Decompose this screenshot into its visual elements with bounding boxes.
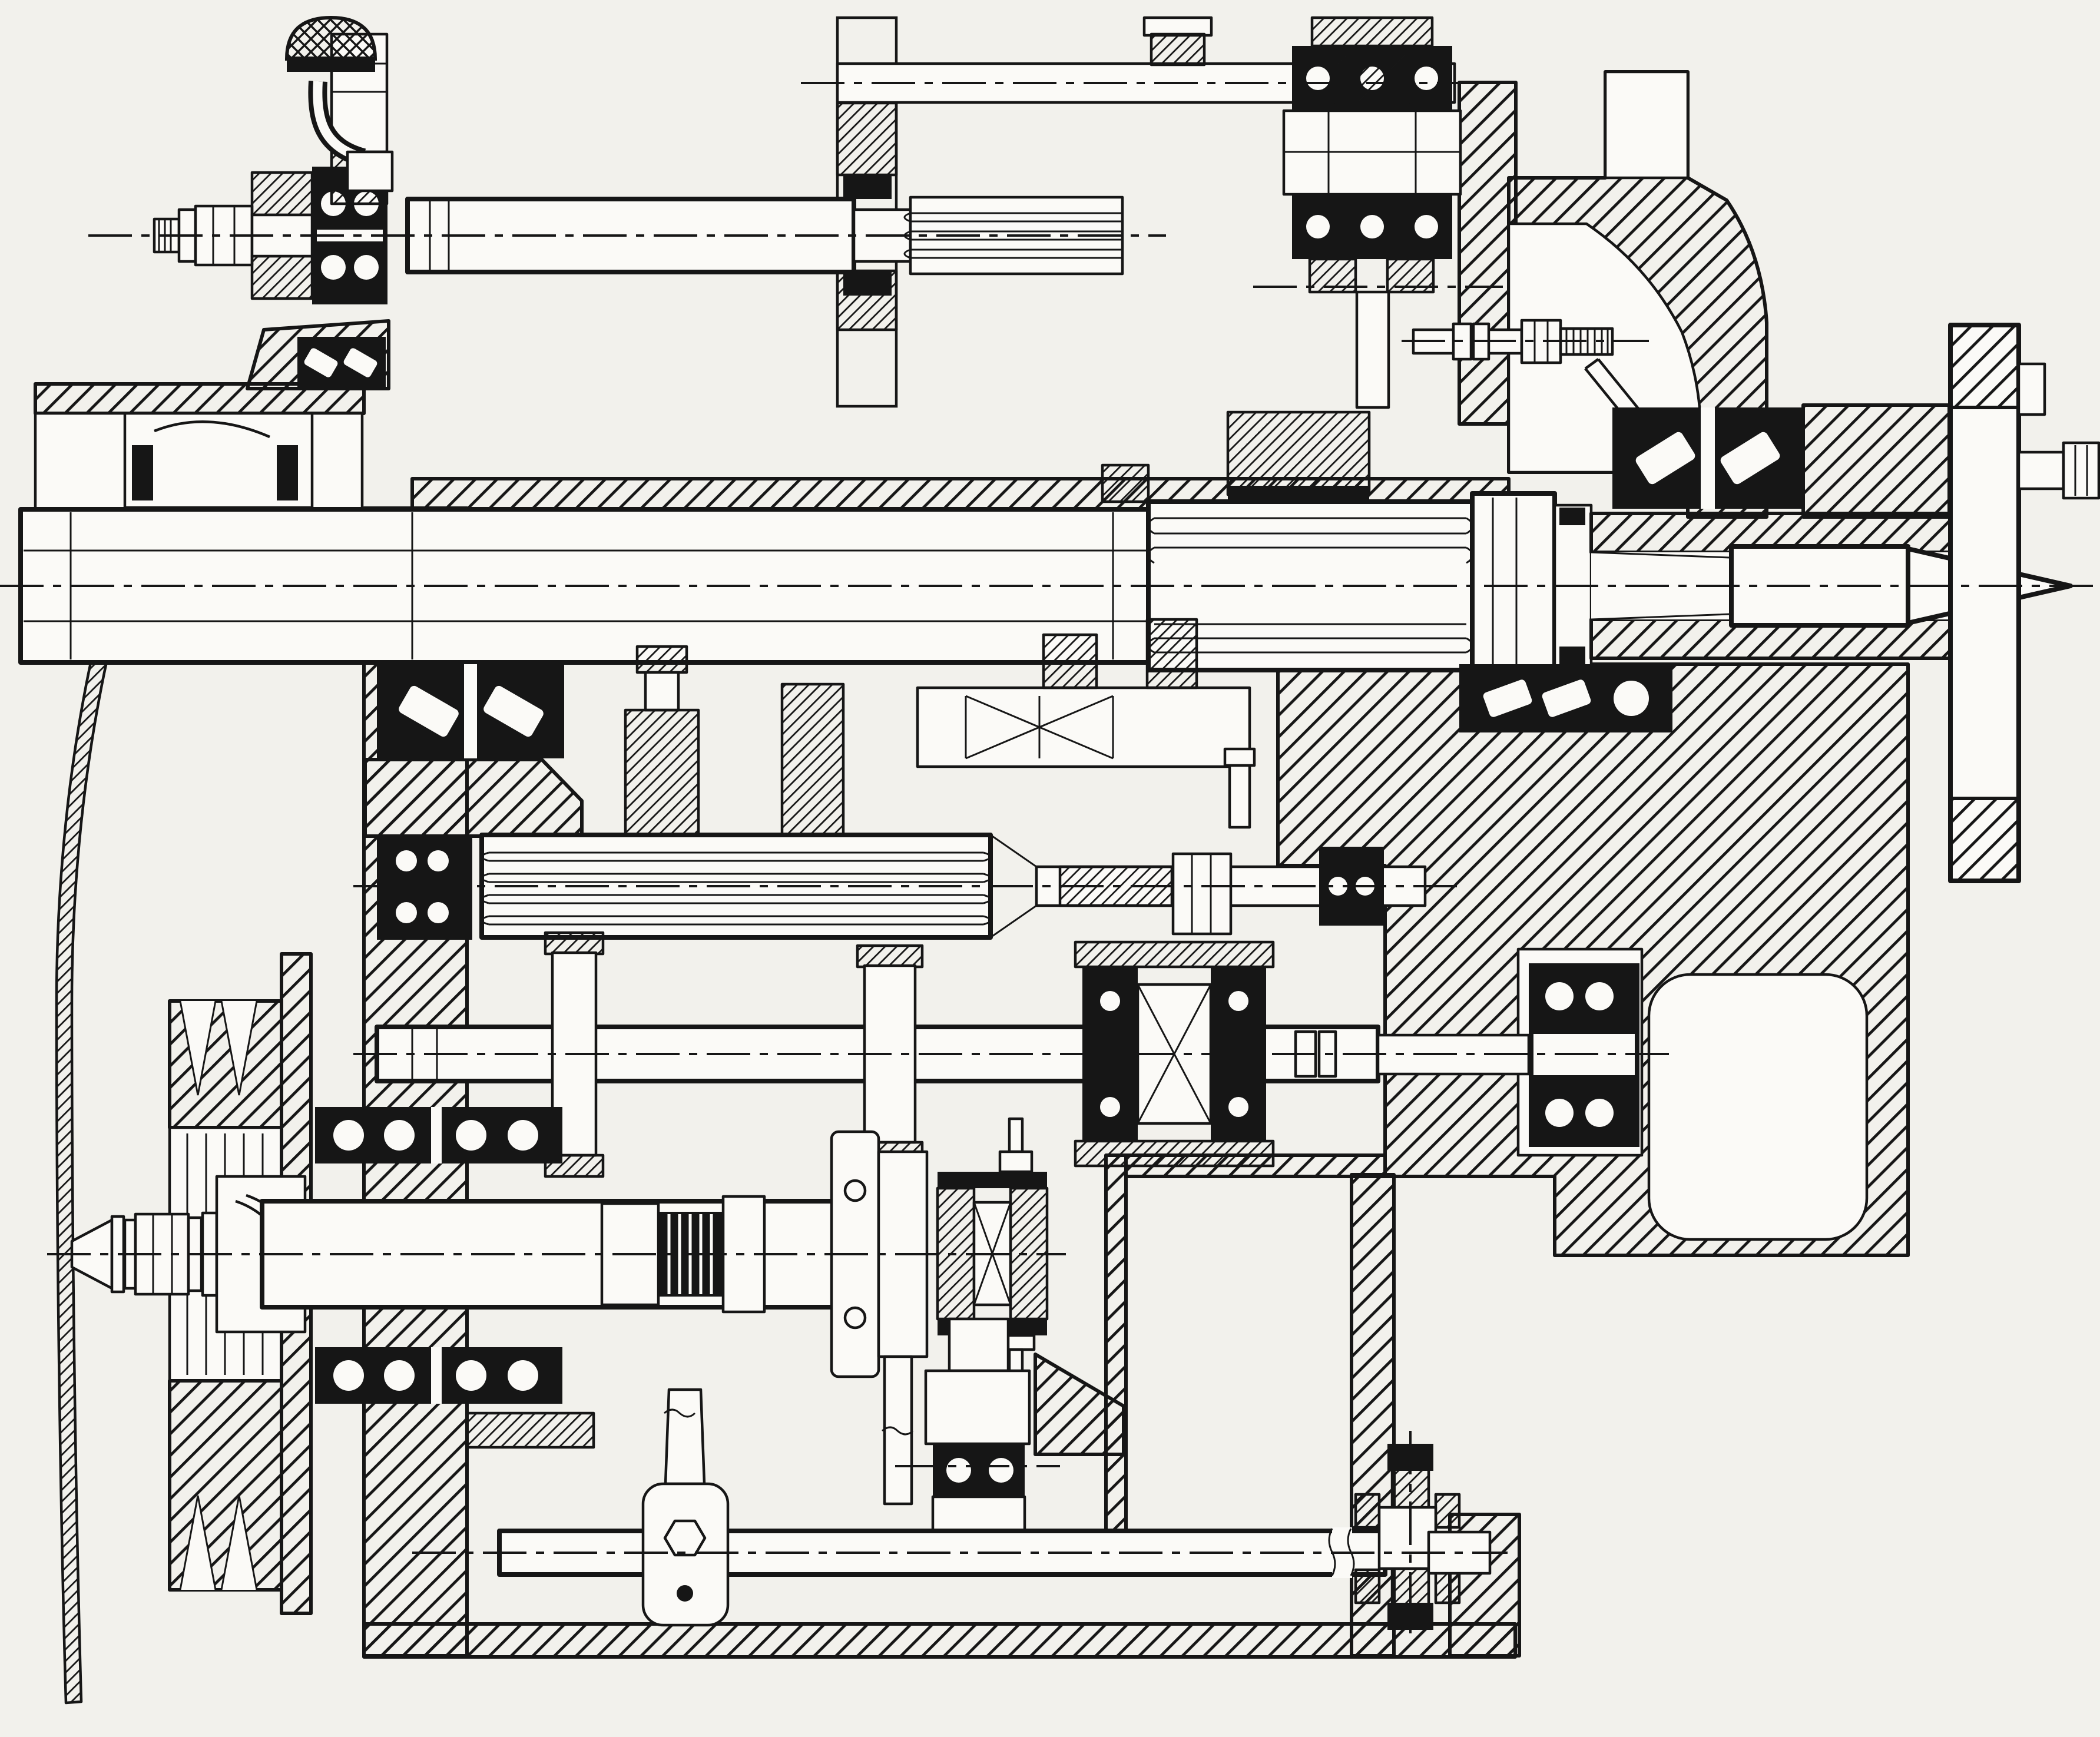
taper-bearing-right [1612, 407, 1803, 509]
oil-cup-band [287, 57, 375, 72]
cluster-inner-hatch [1336, 53, 1409, 102]
nose-bearing [1459, 664, 1672, 732]
oil-tube-flange [347, 152, 392, 191]
sectional-drawing [0, 0, 2100, 1737]
top-band-cap [1144, 18, 1211, 35]
taper-bearing-aux [297, 337, 386, 389]
drawing-sheet [0, 0, 2100, 1737]
wall-a-upper [837, 103, 896, 175]
floor [364, 1624, 1515, 1657]
faceplate-hatch-bottom [1950, 798, 2019, 881]
small-pin [1230, 763, 1250, 827]
spline-collar [1102, 465, 1148, 502]
mid-shaft-left-bearing [377, 836, 472, 940]
cluster-stem [1357, 292, 1389, 407]
top-band-stub [1151, 34, 1204, 65]
spindle-gear-rim [1228, 486, 1369, 502]
partition-wall-vertical [1106, 1155, 1126, 1532]
bottom-gear-body [926, 1371, 1029, 1444]
hand-gear-hub [1379, 1507, 1436, 1569]
clamp-left [125, 413, 312, 508]
mid-gear-2 [782, 684, 843, 835]
faceplate-tab [2019, 364, 2045, 415]
mid-shaft-hex-collar [1173, 854, 1231, 934]
helical-gear-top [252, 173, 312, 215]
clutch-bolt-head [1000, 1152, 1032, 1172]
small-pin-head [1225, 749, 1254, 765]
helical-gear-bottom [252, 256, 312, 299]
cluster-cap [1312, 18, 1432, 46]
oil-cup-dome [287, 18, 375, 59]
spindle-left-boss [365, 760, 582, 836]
clamp-bolt-shank [2019, 452, 2063, 489]
taper-bearing-left [377, 664, 564, 758]
inspection-window [1649, 974, 1867, 1239]
spindle-gear [1228, 412, 1369, 495]
fork-hex-bolt [665, 1521, 705, 1555]
floor-step [467, 1413, 594, 1447]
fork-pin [677, 1585, 693, 1602]
nose-housing-block [1803, 405, 1949, 517]
casting-notch [1605, 72, 1688, 178]
faceplate-hatch-top [1950, 325, 2019, 407]
clamp-bolt-nut [2063, 443, 2099, 498]
mid-gear-1 [625, 710, 698, 835]
